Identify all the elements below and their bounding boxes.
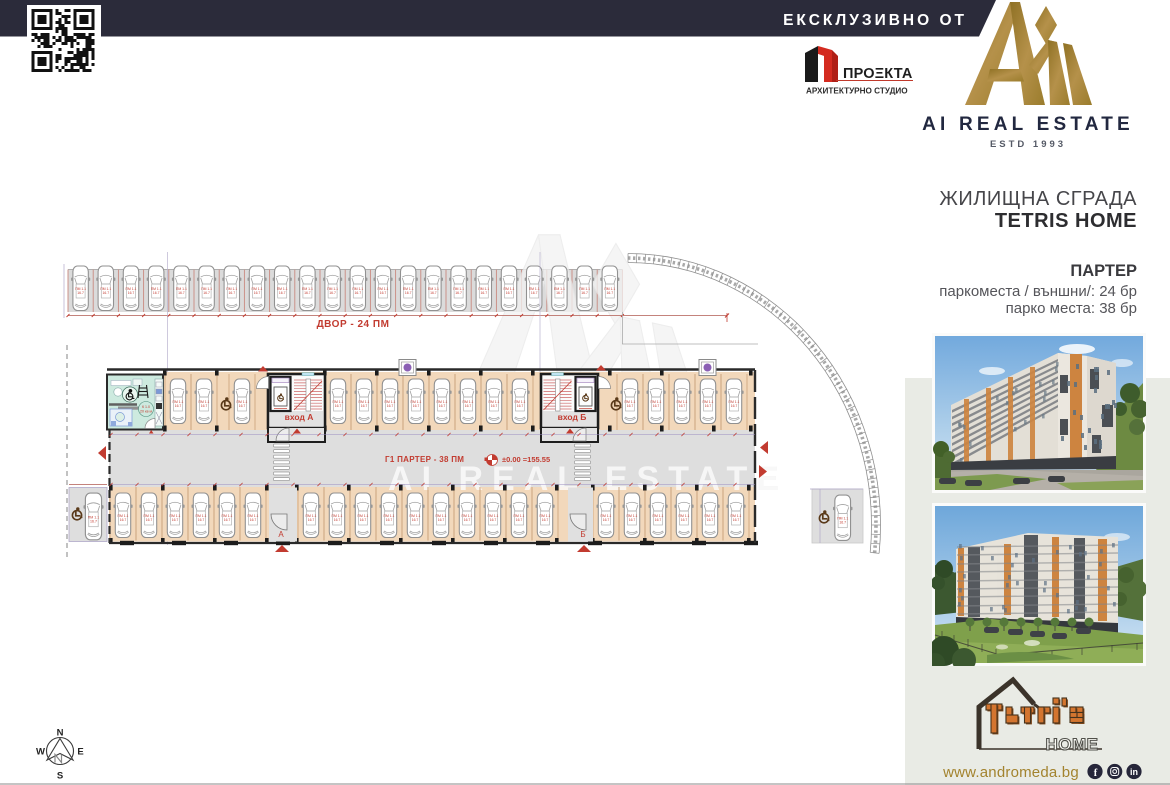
svg-text:ЕКСКЛУЗИВНО ОТ: ЕКСКЛУЗИВНО ОТ	[783, 12, 967, 29]
svg-text:Б: Б	[580, 530, 585, 539]
svg-text:паркоместа / външни/: 24 бр: паркоместа / външни/: 24 бр	[939, 283, 1137, 300]
svg-text:ПРОΞКТА: ПРОΞКТА	[843, 66, 913, 82]
svg-text:E: E	[77, 747, 83, 758]
svg-text:www.andromeda.bg: www.andromeda.bg	[942, 764, 1079, 781]
svg-text:AI REAL ESTATE: AI REAL ESTATE	[922, 114, 1134, 135]
svg-text:вход А: вход А	[285, 412, 314, 422]
svg-text:К 1.0: К 1.0	[142, 405, 150, 409]
svg-text:вход Б: вход Б	[558, 412, 587, 422]
svg-text:А: А	[278, 530, 284, 539]
svg-text:Г1 ПАРТЕР - 38 ПМ: Г1 ПАРТЕР - 38 ПМ	[385, 455, 464, 464]
svg-text:N: N	[57, 728, 64, 739]
svg-text:HOME: HOME	[1046, 735, 1099, 754]
svg-text:TETRIS HOME: TETRIS HOME	[995, 210, 1137, 232]
svg-text:±0.00 =155.55: ±0.00 =155.55	[502, 455, 550, 464]
svg-text:W: W	[36, 747, 45, 758]
svg-text:ПАРТЕР: ПАРТЕР	[1070, 262, 1137, 280]
svg-text:АРХИТЕКТУРНО СТУДИО: АРХИТЕКТУРНО СТУДИО	[806, 87, 908, 96]
svg-text:in: in	[1130, 767, 1138, 777]
svg-text:S: S	[57, 771, 63, 782]
svg-text:ДВОР - 24 ПМ: ДВОР - 24 ПМ	[317, 319, 390, 330]
svg-text:20 кв м: 20 кв м	[140, 410, 152, 414]
svg-text:ESTD 1993: ESTD 1993	[990, 139, 1066, 150]
svg-text:f: f	[1094, 768, 1098, 779]
svg-text:парко места: 38 бр: парко места: 38 бр	[1006, 300, 1137, 317]
svg-text:ЖИЛИЩНА СГРАДА: ЖИЛИЩНА СГРАДА	[939, 188, 1137, 210]
